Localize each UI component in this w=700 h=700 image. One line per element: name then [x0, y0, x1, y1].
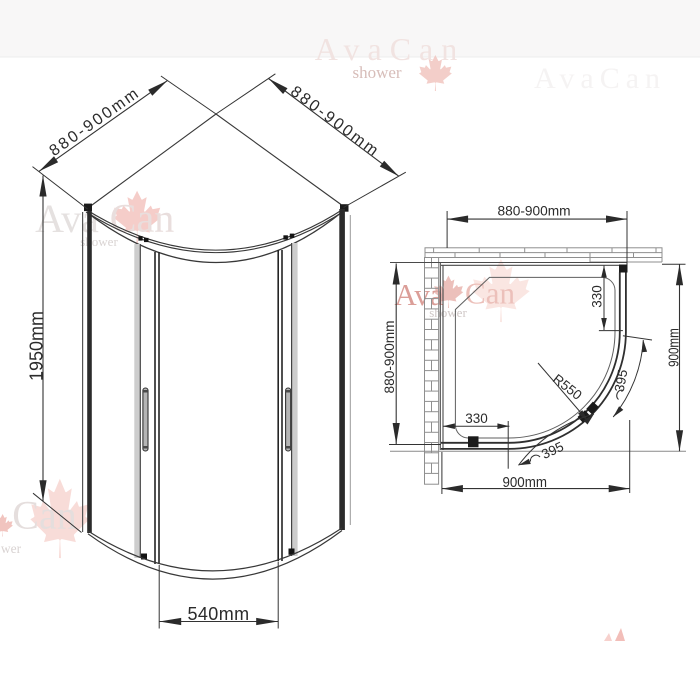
svg-text:AvaCan: AvaCan: [534, 62, 666, 95]
svg-text:880-900mm: 880-900mm: [287, 83, 383, 161]
svg-text:1950mm: 1950mm: [27, 311, 47, 381]
svg-text:wer: wer: [1, 541, 22, 556]
svg-text:AvaCan: AvaCan: [315, 31, 465, 67]
svg-text:330: 330: [465, 411, 488, 426]
svg-text:900mm: 900mm: [665, 328, 682, 367]
svg-text:shower: shower: [80, 234, 118, 249]
svg-text:880-900mm: 880-900mm: [46, 84, 143, 160]
svg-text:Can: Can: [12, 493, 76, 538]
svg-text:395: 395: [539, 439, 566, 462]
svg-text:880-900mm: 880-900mm: [382, 320, 397, 393]
svg-text:395: 395: [612, 368, 631, 393]
svg-text:880-900mm: 880-900mm: [497, 203, 570, 218]
svg-text:330: 330: [590, 285, 605, 308]
svg-text:540mm: 540mm: [187, 604, 249, 624]
svg-text:shower: shower: [429, 305, 467, 320]
svg-text:shower: shower: [352, 63, 401, 82]
svg-text:900mm: 900mm: [502, 473, 546, 490]
svg-text:R550: R550: [550, 371, 585, 403]
